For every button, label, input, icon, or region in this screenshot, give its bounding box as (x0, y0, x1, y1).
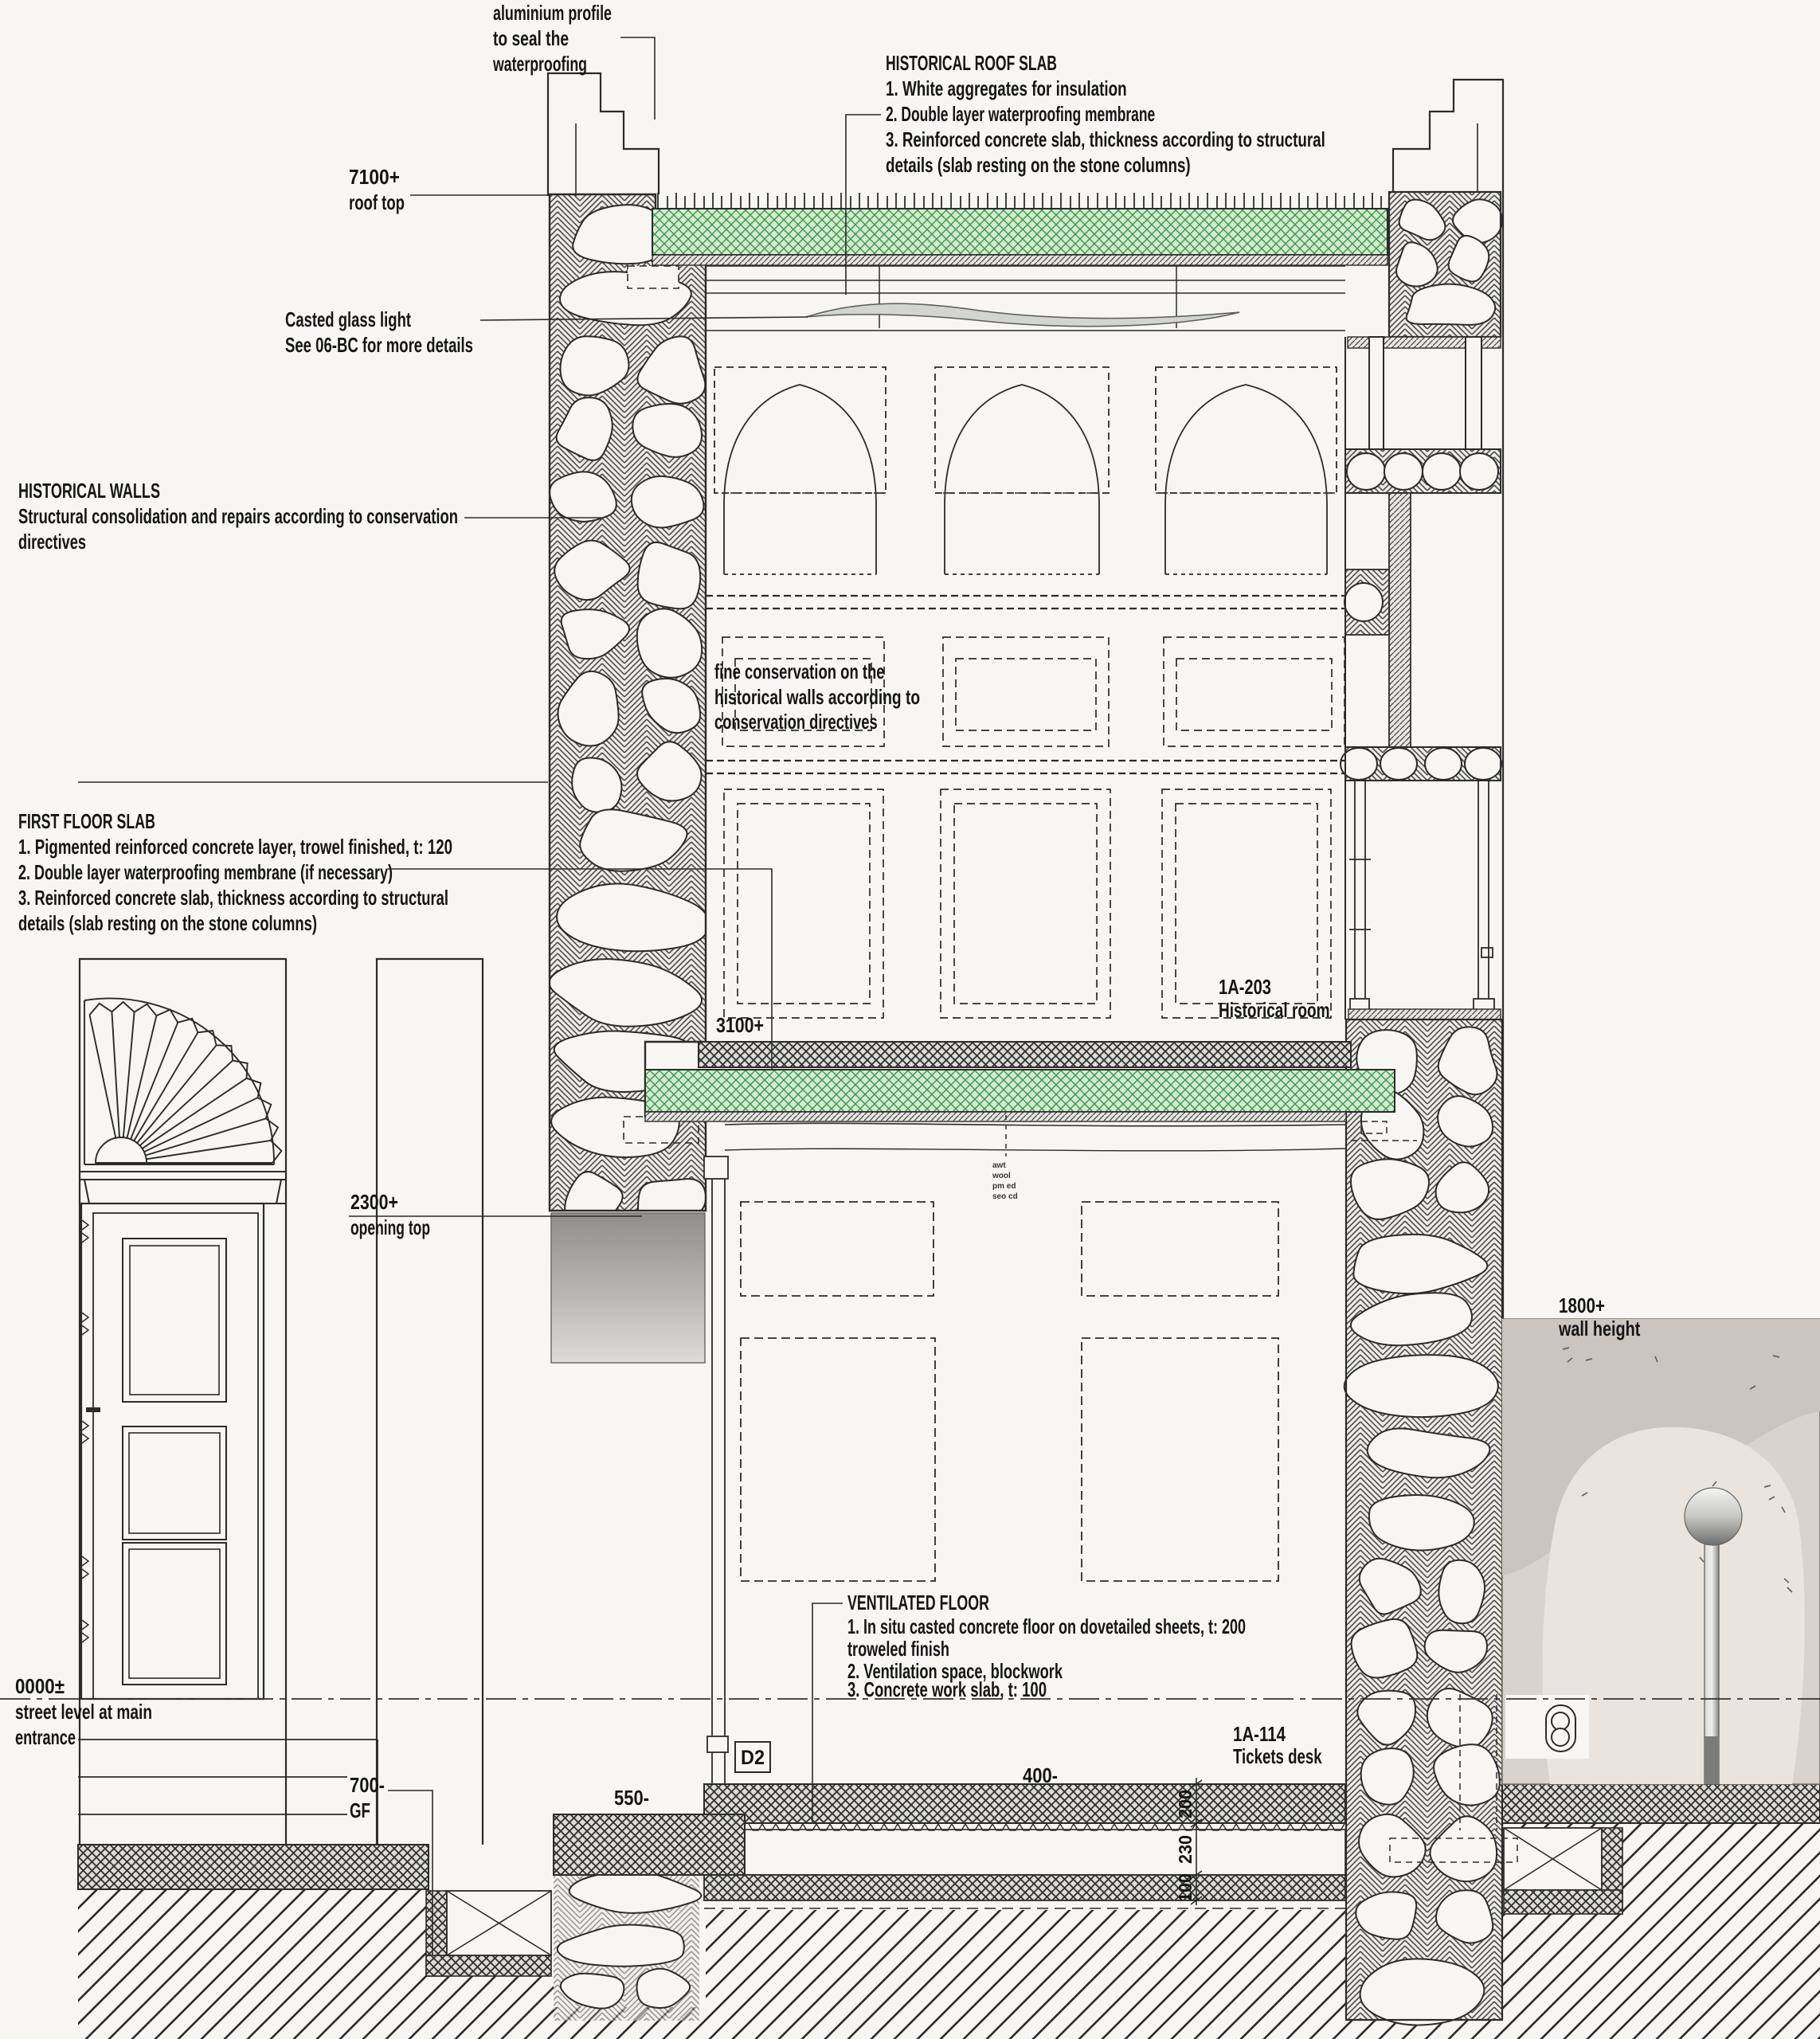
svg-text:wool: wool (992, 1172, 1011, 1180)
svg-text:aluminium profile: aluminium profile (493, 1, 612, 25)
svg-text:2. Double layer waterproofing: 2. Double layer waterproofing membrane (886, 102, 1155, 126)
svg-text:HISTORICAL ROOF SLAB: HISTORICAL ROOF SLAB (886, 51, 1057, 75)
svg-text:wall height: wall height (1558, 1317, 1640, 1340)
svg-text:Tickets desk: Tickets desk (1233, 1744, 1322, 1768)
svg-text:400-: 400- (1023, 1763, 1058, 1787)
svg-text:2300+: 2300+ (350, 1190, 398, 1214)
svg-text:pm ed: pm ed (992, 1182, 1016, 1191)
svg-text:1. Pigmented reinforced concre: 1. Pigmented reinforced concrete layer, … (18, 835, 452, 859)
svg-text:FIRST FLOOR SLAB: FIRST FLOOR SLAB (18, 809, 155, 833)
svg-text:3100+: 3100+ (716, 1013, 764, 1037)
svg-text:D2: D2 (741, 1747, 765, 1769)
svg-text:3. Reinforced concrete slab, t: 3. Reinforced concrete slab, thickness a… (886, 127, 1325, 151)
svg-text:1A-114: 1A-114 (1233, 1722, 1286, 1746)
svg-text:waterproofing: waterproofing (492, 52, 587, 76)
svg-text:fine conservation on the: fine conservation on the (714, 659, 885, 683)
svg-text:1. In situ casted concrete flo: 1. In situ casted concrete floor on dove… (847, 1614, 1246, 1638)
svg-text:Historical room: Historical room (1219, 998, 1330, 1022)
svg-text:awt: awt (992, 1161, 1006, 1170)
svg-text:roof top: roof top (349, 190, 405, 214)
svg-text:100: 100 (1175, 1873, 1196, 1902)
svg-text:directives: directives (18, 530, 86, 554)
svg-text:See 06-BC for more details: See 06-BC for more details (285, 333, 473, 357)
svg-text:Structural consolidation and r: Structural consolidation and repairs acc… (18, 504, 458, 528)
svg-text:1. White aggregates for insula: 1. White aggregates for insulation (886, 76, 1127, 100)
svg-text:opening top: opening top (350, 1215, 430, 1239)
svg-text:2. Double layer waterproofing: 2. Double layer waterproofing membrane (… (18, 860, 393, 884)
svg-text:details (slab resting on the s: details (slab resting on the stone colum… (18, 911, 317, 935)
svg-text:3. Reinforced concrete slab, t: 3. Reinforced concrete slab, thickness a… (18, 886, 448, 910)
svg-text:entrance: entrance (15, 1725, 76, 1749)
svg-text:1A-203: 1A-203 (1219, 975, 1271, 999)
svg-text:details (slab resting on the s: details (slab resting on the stone colum… (886, 153, 1191, 177)
svg-text:street level at main: street level at main (15, 1700, 152, 1724)
svg-text:HISTORICAL WALLS: HISTORICAL WALLS (18, 479, 160, 503)
svg-text:700-: 700- (350, 1773, 385, 1797)
svg-text:conservation directives: conservation directives (714, 710, 878, 734)
svg-text:3. Concrete work slab, t: 100: 3. Concrete work slab, t: 100 (847, 1677, 1047, 1701)
svg-text:seo cd: seo cd (992, 1192, 1018, 1201)
svg-text:GF: GF (350, 1798, 370, 1822)
svg-text:230: 230 (1175, 1835, 1196, 1864)
svg-text:0000±: 0000± (15, 1674, 65, 1698)
svg-text:200: 200 (1175, 1790, 1196, 1818)
svg-text:troweled finish: troweled finish (847, 1637, 949, 1661)
svg-text:VENTILATED FLOOR: VENTILATED FLOOR (847, 1591, 989, 1614)
svg-text:1800+: 1800+ (1559, 1293, 1605, 1317)
svg-text:Casted glass light: Casted glass light (285, 307, 411, 331)
svg-text:to seal the: to seal the (493, 26, 569, 50)
svg-text:historical walls according to: historical walls according to (714, 685, 920, 709)
svg-text:550-: 550- (614, 1786, 649, 1810)
svg-text:7100+: 7100+ (349, 165, 400, 189)
